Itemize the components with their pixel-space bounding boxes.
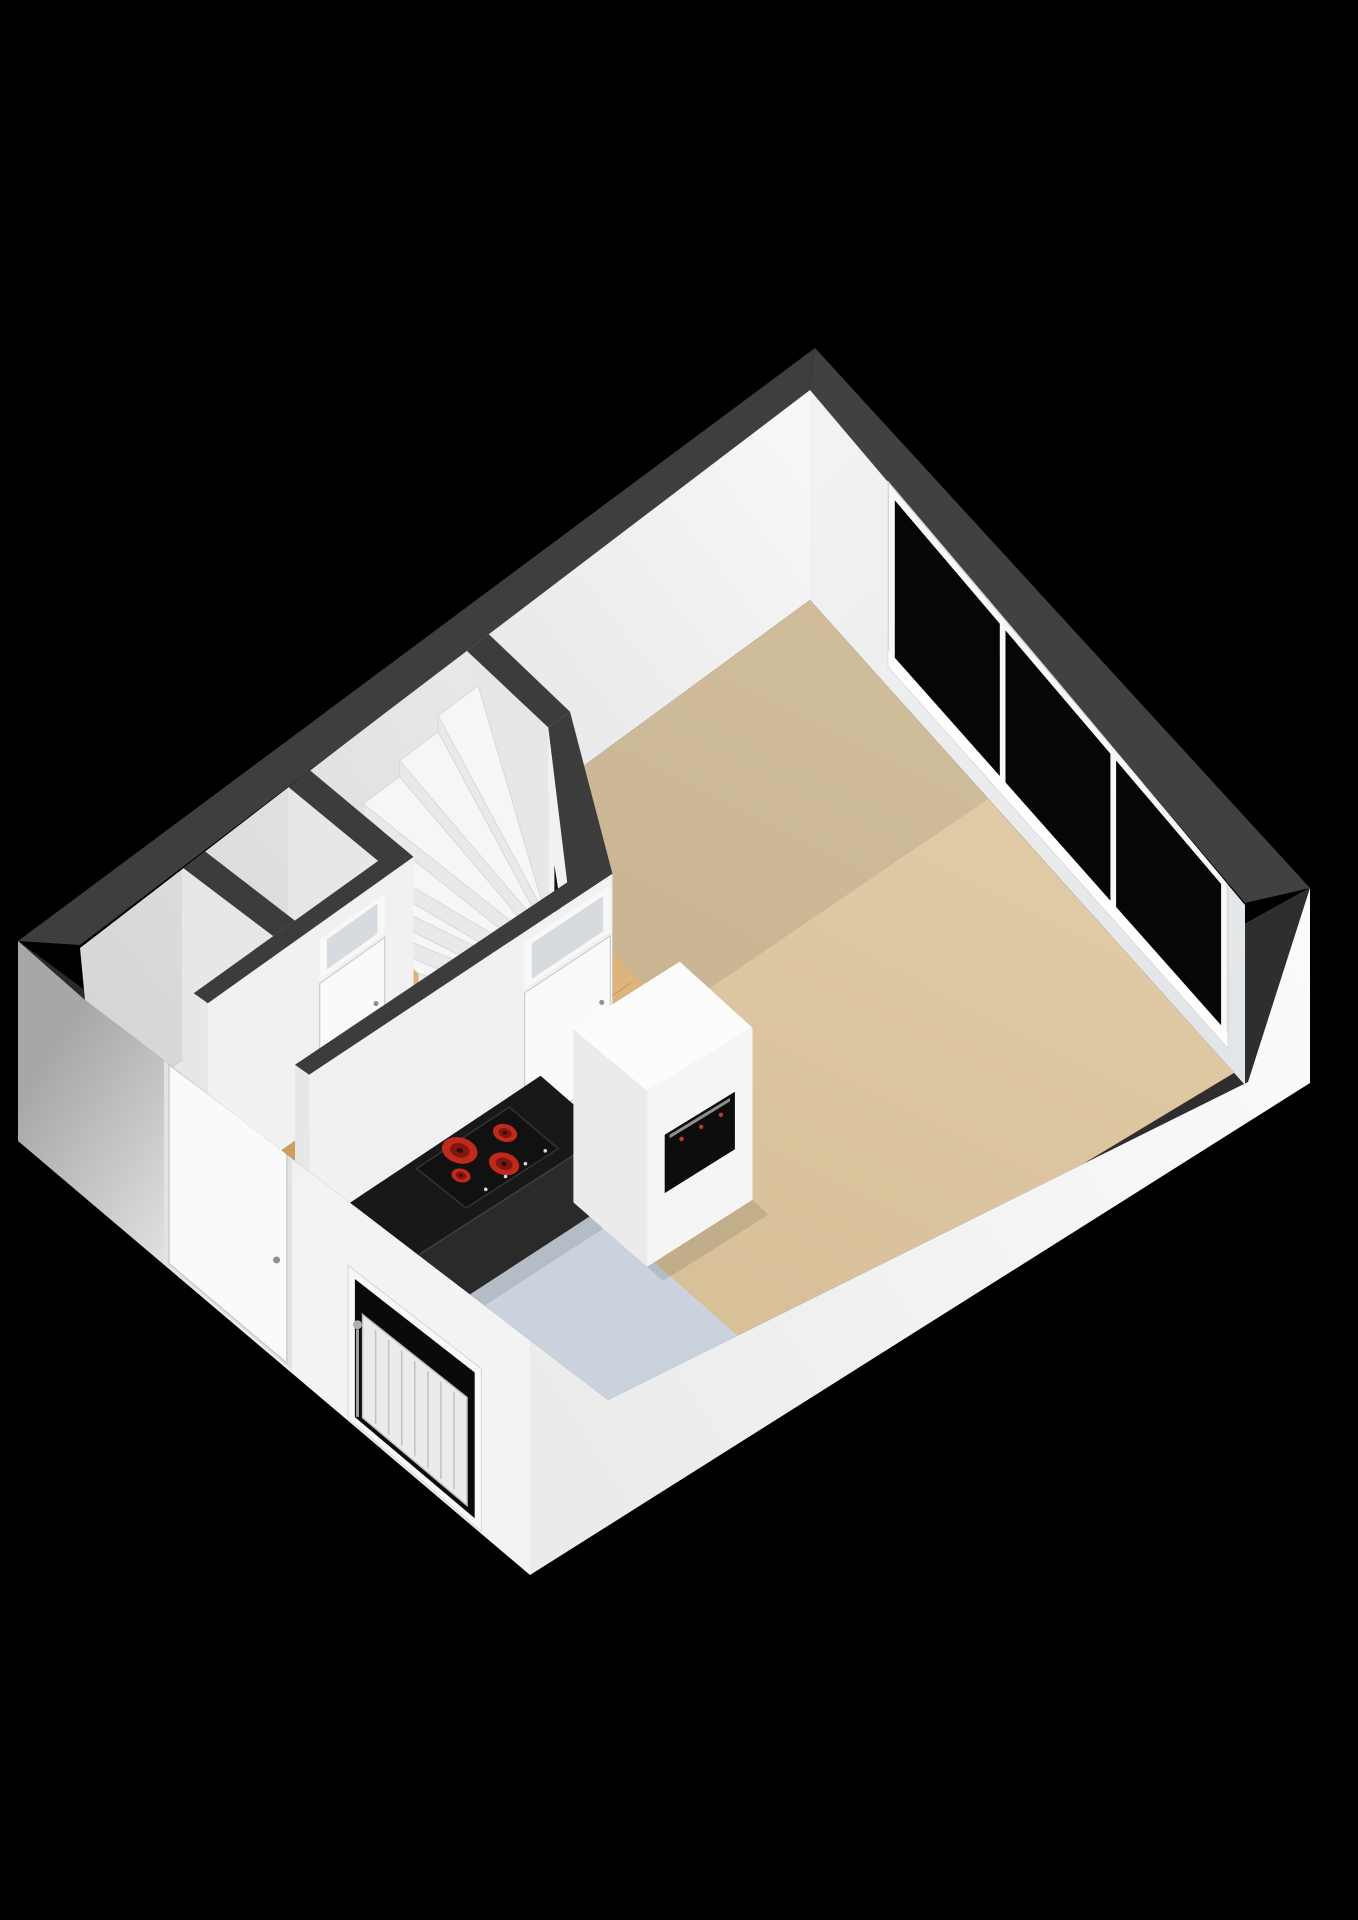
front-door-handle [273,1256,280,1263]
cooktop-control-dot [543,1149,547,1153]
oven-knob [719,1113,723,1117]
oven-knob [699,1125,703,1129]
interior-door-handle [599,1000,604,1005]
cooktop-control-dot [484,1188,488,1192]
cooktop-control-dot [524,1162,528,1166]
oven-knob [679,1137,683,1141]
floorplan-3d-view [0,0,1358,1920]
radiator-valve [353,1320,362,1329]
toilet-door-handle [374,1001,379,1006]
floorplan-svg [0,0,1358,1920]
cooktop-control-dot [504,1175,508,1179]
